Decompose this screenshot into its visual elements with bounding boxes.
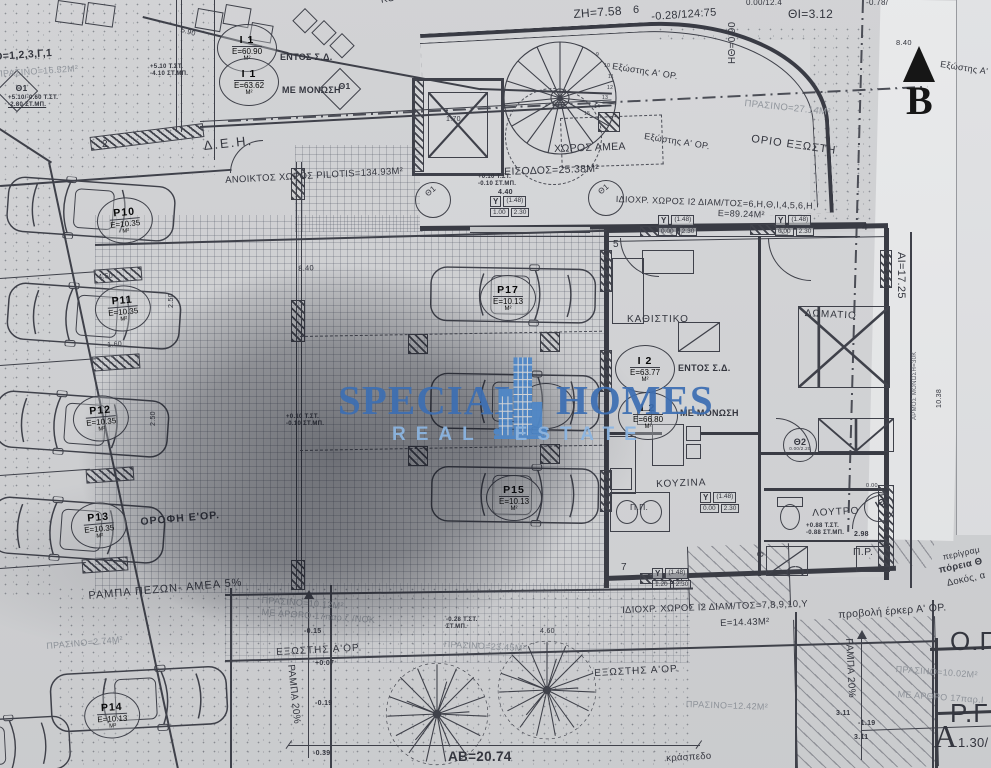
furniture-box xyxy=(195,8,224,32)
parking-label-p16-obscured xyxy=(518,383,574,429)
stair-step-9: 9 xyxy=(596,53,599,58)
elevator-cab xyxy=(428,92,488,158)
ramp-right-edge-a xyxy=(795,612,797,768)
column-hatch xyxy=(540,444,560,464)
chair xyxy=(686,444,701,459)
ybox-right-b: Υ(1.48) 0.002.30 xyxy=(775,215,814,236)
wardrobe xyxy=(818,418,894,452)
mark-039: -0.39 xyxy=(313,750,330,757)
label-a-big: Α xyxy=(934,720,957,754)
dim-250: 2.50 xyxy=(168,293,175,308)
dim-topcut1: 0.00/12.4 xyxy=(746,0,782,7)
stair-step-11: 11 xyxy=(608,75,614,80)
dim-7: 7 xyxy=(621,563,627,574)
apt-partition-living-kitchen-b xyxy=(700,432,758,435)
car-icon xyxy=(46,661,233,737)
boiler-itheta: ΙΘ xyxy=(864,492,894,522)
dim-450: 4.50 xyxy=(98,273,113,282)
boiler-theta2: Θ2 0.00/2.20 xyxy=(783,428,817,462)
parking-label-p15: P15Ε=10.13Μ² xyxy=(486,475,542,521)
ramp-arrow-right xyxy=(857,630,867,639)
dim-hth: ΗΘ=0.90 xyxy=(728,22,739,64)
ybox-right-a: Υ(1.48) 0.002.30 xyxy=(658,215,697,236)
unit-note-i2-entos: ΕΝΤΟΣ Σ.Δ. xyxy=(678,364,731,373)
level-mark-loutro-2: -0.88 ΣΤ.ΜΠ. xyxy=(806,530,844,536)
dim-ai: ΑΙ=17.25 xyxy=(894,252,906,299)
dim-250b: 2.50 xyxy=(150,411,157,426)
label-prasino-1242: ΠΡΑΣΙΝΟ=12.42Μ² xyxy=(686,700,768,712)
parking-label-p17: P17Ε=10.13Μ² xyxy=(480,275,536,321)
ybox-bottom: Υ(1.48) 1.202.30 xyxy=(652,568,691,589)
level-mark-entr-2: -0.10 ΣΤ.ΜΠ. xyxy=(478,181,516,187)
furniture-box xyxy=(55,0,86,26)
label-a-val: 1.30/ xyxy=(958,736,988,750)
stair-step-10: 10 xyxy=(604,64,610,69)
dim-028: -0.28/124:75 xyxy=(651,7,717,23)
ybox-entrance: Υ(1.48) 1.002.30 xyxy=(490,196,529,217)
sofa-2 xyxy=(642,250,694,274)
ramp-arrow-right-line xyxy=(861,638,862,760)
level-mark-ctr-1: +0.10 Τ.ΣΤ. xyxy=(286,414,319,420)
dim-4: 4 xyxy=(862,223,868,234)
label-dokos: Δοκός, α xyxy=(946,571,987,589)
level-mark-entr-1: +0.10 Τ.ΣΤ. xyxy=(478,174,511,180)
label-e8924: Ε=89.24Μ² xyxy=(718,209,765,220)
ramp-left-edge-a xyxy=(230,588,232,768)
level-mark-tl-1: +5.10/-0.60 Τ.ΣΤ. xyxy=(8,95,58,101)
unit-note-i1-entos: ΕΝΤΟΣ Σ.Δ. xyxy=(280,53,333,62)
column-hatch xyxy=(540,332,560,352)
dim-460: 4.60 xyxy=(540,628,555,635)
dim-5: 5 xyxy=(613,240,619,251)
mark-007: +0.07 xyxy=(315,660,334,667)
floor-plan: Θ1 Θ1 xyxy=(0,0,991,768)
stair-step-14: 14 xyxy=(594,105,600,110)
itheta-sub: 0.00 xyxy=(866,484,878,490)
dim-tick xyxy=(696,740,703,749)
unit-label-i1-monosi: Ι 1Ε=63.62Μ² xyxy=(219,58,279,106)
dim-thi: ΘΙ=3.12 xyxy=(788,8,833,21)
ramp-arrow-left-line xyxy=(308,598,309,758)
mark-019: -0.19 xyxy=(315,700,332,707)
unit-label-i2-monosi: Ι 2Ε=66.80Μ² xyxy=(618,392,678,440)
dim-ab: ΑΒ=20.74 xyxy=(448,750,512,764)
coffee-table xyxy=(678,322,720,352)
car-icon xyxy=(0,712,76,768)
label-kouzina: ΚΟΥΖΙΝΑ xyxy=(656,478,707,490)
column-hatch xyxy=(408,446,428,466)
dim-119: -1.19 xyxy=(858,720,875,727)
stair-step-12: 12 xyxy=(607,86,613,91)
dim-zh: ΖΗ=7.58 xyxy=(573,5,622,21)
level-mark-ctr-2: -0.10 ΣΤ.ΜΠ. xyxy=(286,421,324,427)
toilet xyxy=(780,504,800,530)
wall-hatch xyxy=(600,250,612,292)
appliance xyxy=(610,468,632,490)
wall-hatch xyxy=(880,250,892,288)
elevator-x-icon xyxy=(429,93,487,157)
label-og: Ο.Γ xyxy=(950,628,991,655)
label-armos: ΑΡΜΟΣ ΜΟΝΩΣΗ=30Κ xyxy=(912,351,918,420)
dim-160: 1.60 xyxy=(107,341,122,350)
label-pr: Π.Ρ. xyxy=(853,547,873,558)
dim-2: 2 xyxy=(102,140,108,151)
chair xyxy=(686,426,701,441)
dim-170: 1.70 xyxy=(446,116,461,123)
label-kraspedo: κράσπεδο xyxy=(666,752,712,764)
dim-311a: 3.11 xyxy=(836,710,850,717)
survey-marker-diamond xyxy=(329,33,354,58)
dim-1038: 10.38 xyxy=(936,389,943,408)
car-icon xyxy=(0,172,182,246)
grid-top-small xyxy=(295,145,423,232)
furniture-box xyxy=(85,2,116,28)
dim-311b: 3.11 xyxy=(854,734,868,741)
unit-label-i2-entos: Ι 2Ε=63.77Μ² xyxy=(615,345,675,393)
car-icon xyxy=(0,278,188,355)
label-e1443: Ε=14.43Μ² xyxy=(720,617,770,629)
stair-step-15: 15 xyxy=(584,112,590,117)
level-mark-bot-1: -0.28 Τ.ΣΤ. xyxy=(446,617,478,623)
paper-edge-far xyxy=(956,0,991,535)
label-rampa20-right: ΡΑΜΠΑ 20% xyxy=(843,638,857,698)
elevator-wall-hatch xyxy=(412,78,424,172)
toilet-tank xyxy=(777,497,803,507)
unit-note-i2-monosi: ΜΕ ΜΟΝΩΣΗ xyxy=(680,409,739,418)
shower xyxy=(766,546,808,576)
column-hatch xyxy=(291,560,305,590)
level-mark-loutro-1: +0.88 Τ.ΣΤ. xyxy=(806,523,839,529)
dim-840a: 8.40 xyxy=(896,39,912,47)
dim-topcut2: -0.78/ xyxy=(866,0,888,7)
car-icon xyxy=(427,368,604,435)
dim-840b: 8.40 xyxy=(298,264,314,273)
paper-edge-line xyxy=(956,0,957,535)
north-arrow-icon xyxy=(903,46,935,82)
label-kathistiko: ΚΑΘΙΣΤΙΚΟ xyxy=(627,315,689,326)
label-pp: Π.Π. xyxy=(630,503,648,512)
mark-015: -0.15 xyxy=(304,628,321,635)
dim-298: 2.98 xyxy=(854,531,869,538)
survey-point-theta1-mid: Θ1 xyxy=(319,68,361,110)
bath-wall-mid xyxy=(764,540,888,542)
level-mark-mid-2: -4.10 ΣΤ.ΜΠ. xyxy=(150,71,188,77)
pilotis-left-wall xyxy=(296,162,302,590)
dim-440: 4.40 xyxy=(498,189,513,196)
stair-step-13: 13 xyxy=(602,96,608,101)
column-hatch xyxy=(408,334,428,354)
level-mark-bot-2: ΣΤ.ΜΠ. xyxy=(446,624,467,630)
dim-6: 6 xyxy=(633,5,639,17)
apt-partition-main xyxy=(758,236,761,576)
tree-icon xyxy=(492,638,602,742)
ybox-kitchen: Υ(1.48) 0.002.30 xyxy=(700,492,739,513)
north-label: B xyxy=(906,80,933,122)
label-kouzina-top: ΚΟΥΖΙΝΑ xyxy=(380,0,427,6)
level-mark-mid-1: +5.10 Τ.ΣΤ. xyxy=(150,64,183,70)
level-mark-tl-2: -2.80 ΣΤ.ΜΠ. xyxy=(8,102,46,108)
